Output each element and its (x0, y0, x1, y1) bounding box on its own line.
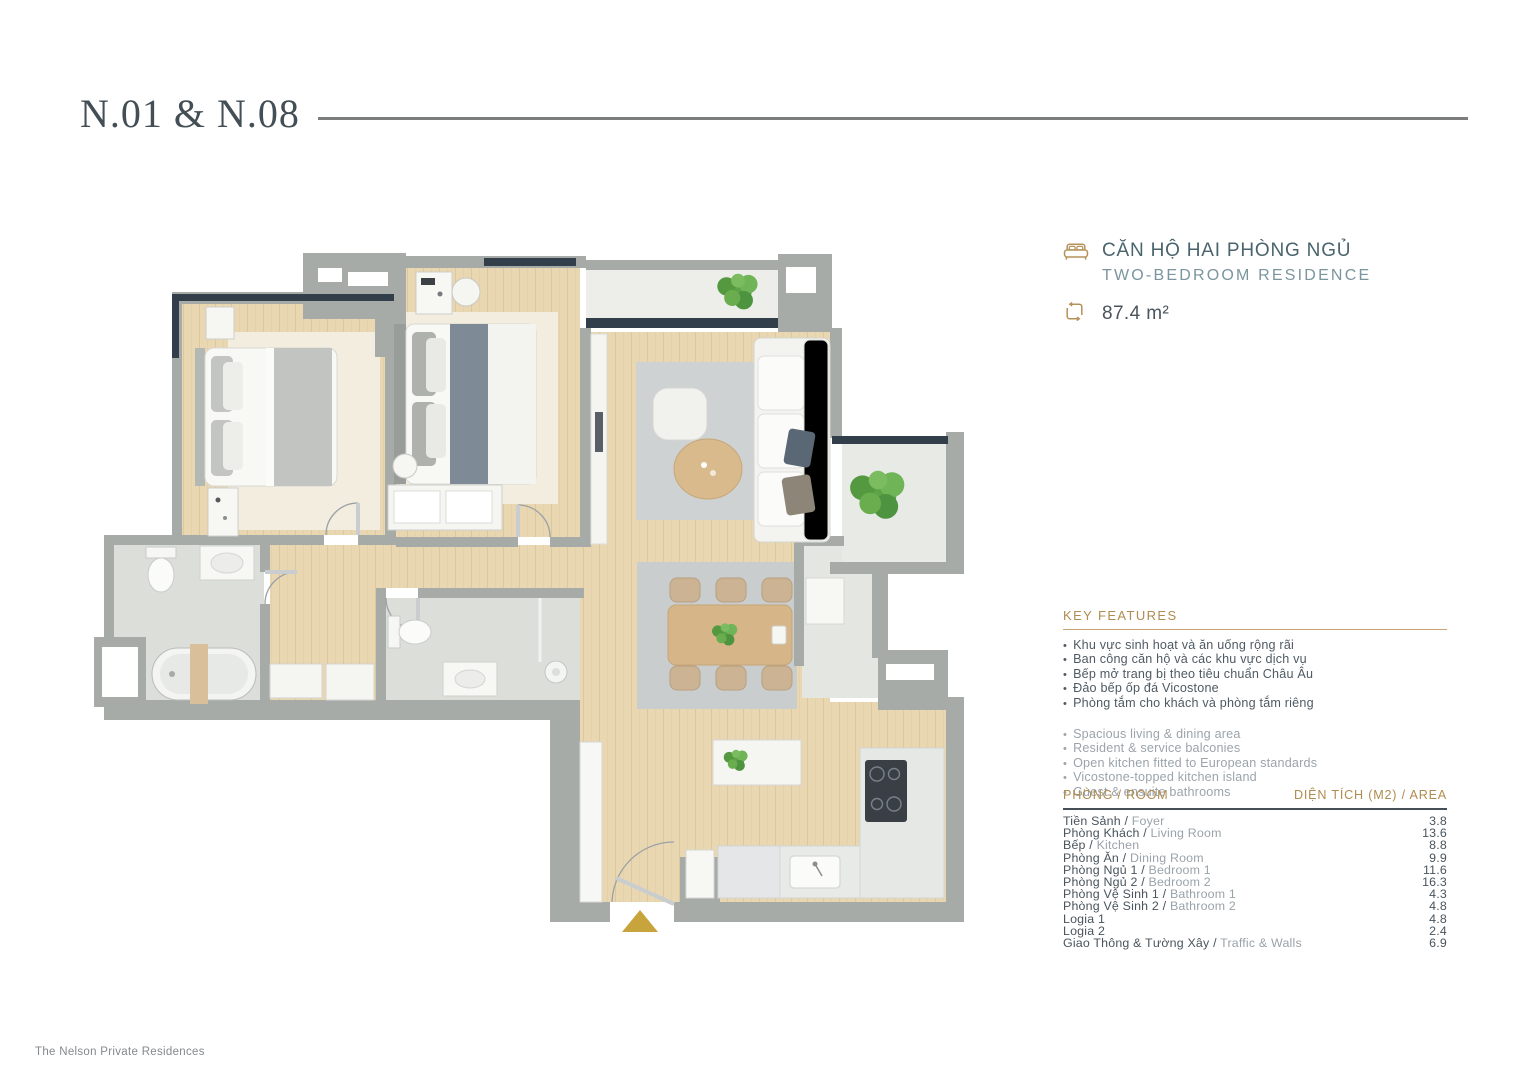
tv (595, 412, 603, 452)
key-features: KEY FEATURES Khu vực sinh hoạt và ăn uốn… (1063, 608, 1447, 800)
stool (452, 278, 480, 306)
pillow-taupe (781, 474, 816, 516)
washer (806, 578, 844, 624)
bedroom2-window (484, 258, 576, 266)
nightstand (206, 307, 234, 339)
floor-plan (88, 242, 968, 942)
key-features-heading: KEY FEATURES (1063, 608, 1447, 630)
unit-header: CĂN HỘ HAI PHÒNG NGỦ TWO-BEDROOM RESIDEN… (1063, 240, 1447, 326)
bed1-headboard (195, 348, 205, 486)
key-feature-item: Ban công căn hộ và các khu vực dịch vụ (1063, 653, 1447, 667)
key-feature-item: Khu vực sinh hoạt và ăn uống rộng rãi (1063, 639, 1447, 653)
table-row: Giao Thông & Tường Xây / Traffic & Walls… (1063, 937, 1447, 949)
room-area-table: PHÒNG / ROOM DIỆN TÍCH (M2) / AREA Tiền … (1063, 788, 1447, 949)
tub-caddy (190, 644, 208, 704)
key-feature-item: Resident & service balconies (1063, 742, 1447, 756)
footer-brand: The Nelson Private Residences (35, 1046, 205, 1058)
page-title: N.01 & N.08 (80, 90, 300, 137)
entry-arrow (622, 910, 658, 932)
table-row: Logia 14.8 (1063, 913, 1447, 925)
toilet1 (148, 558, 174, 592)
bed2-blanket (450, 324, 488, 484)
table-row: Phòng Vệ Sinh 2 / Bathroom 24.8 (1063, 900, 1447, 912)
key-features-list-vi: Khu vực sinh hoạt và ăn uống rộng rãiBan… (1063, 639, 1447, 711)
key-feature-item: Phòng tắm cho khách và phòng tắm riêng (1063, 697, 1447, 711)
bed1-blanket (274, 348, 332, 486)
area-icon (1065, 302, 1091, 326)
logia1-window (586, 318, 778, 328)
unit-type-en: TWO-BEDROOM RESIDENCE (1102, 267, 1371, 285)
kitchen-island (713, 740, 801, 785)
key-feature-item: Đảo bếp ốp đá Vicostone (1063, 682, 1447, 696)
coffee-table-white (653, 388, 707, 440)
toilet1-tank (146, 547, 176, 558)
side-table (393, 454, 417, 478)
key-feature-item: Bếp mở trang bị theo tiêu chuẩn Châu Âu (1063, 668, 1447, 682)
toilet2 (399, 620, 431, 644)
dresser (208, 488, 238, 536)
key-feature-item: Spacious living & dining area (1063, 728, 1447, 742)
table-header: PHÒNG / ROOM DIỆN TÍCH (M2) / AREA (1063, 788, 1447, 810)
col-room: PHÒNG / ROOM (1063, 788, 1168, 802)
floor-plan-svg (88, 242, 968, 942)
key-feature-item: Open kitchen fitted to European standard… (1063, 757, 1447, 771)
title-rule (318, 117, 1468, 120)
bedroom1-window (176, 294, 394, 301)
unit-area: 87.4 m² (1102, 303, 1169, 325)
key-feature-item: Vicostone-topped kitchen island (1063, 771, 1447, 785)
dining-furniture (668, 578, 792, 690)
col-area: DIỆN TÍCH (M2) / AREA (1294, 788, 1447, 802)
table-body: Tiền Sảnh / Foyer3.8Phòng Khách / Living… (1063, 815, 1447, 949)
logia2-window (832, 436, 948, 444)
unit-type-vi: CĂN HỘ HAI PHÒNG NGỦ (1102, 240, 1371, 262)
brochure-page: { "page": { "title_code": "N.01 & N.08",… (0, 0, 1536, 1086)
bed-icon (1063, 242, 1089, 266)
foyer-closet (580, 742, 602, 902)
coffee-table-wood (674, 439, 742, 499)
